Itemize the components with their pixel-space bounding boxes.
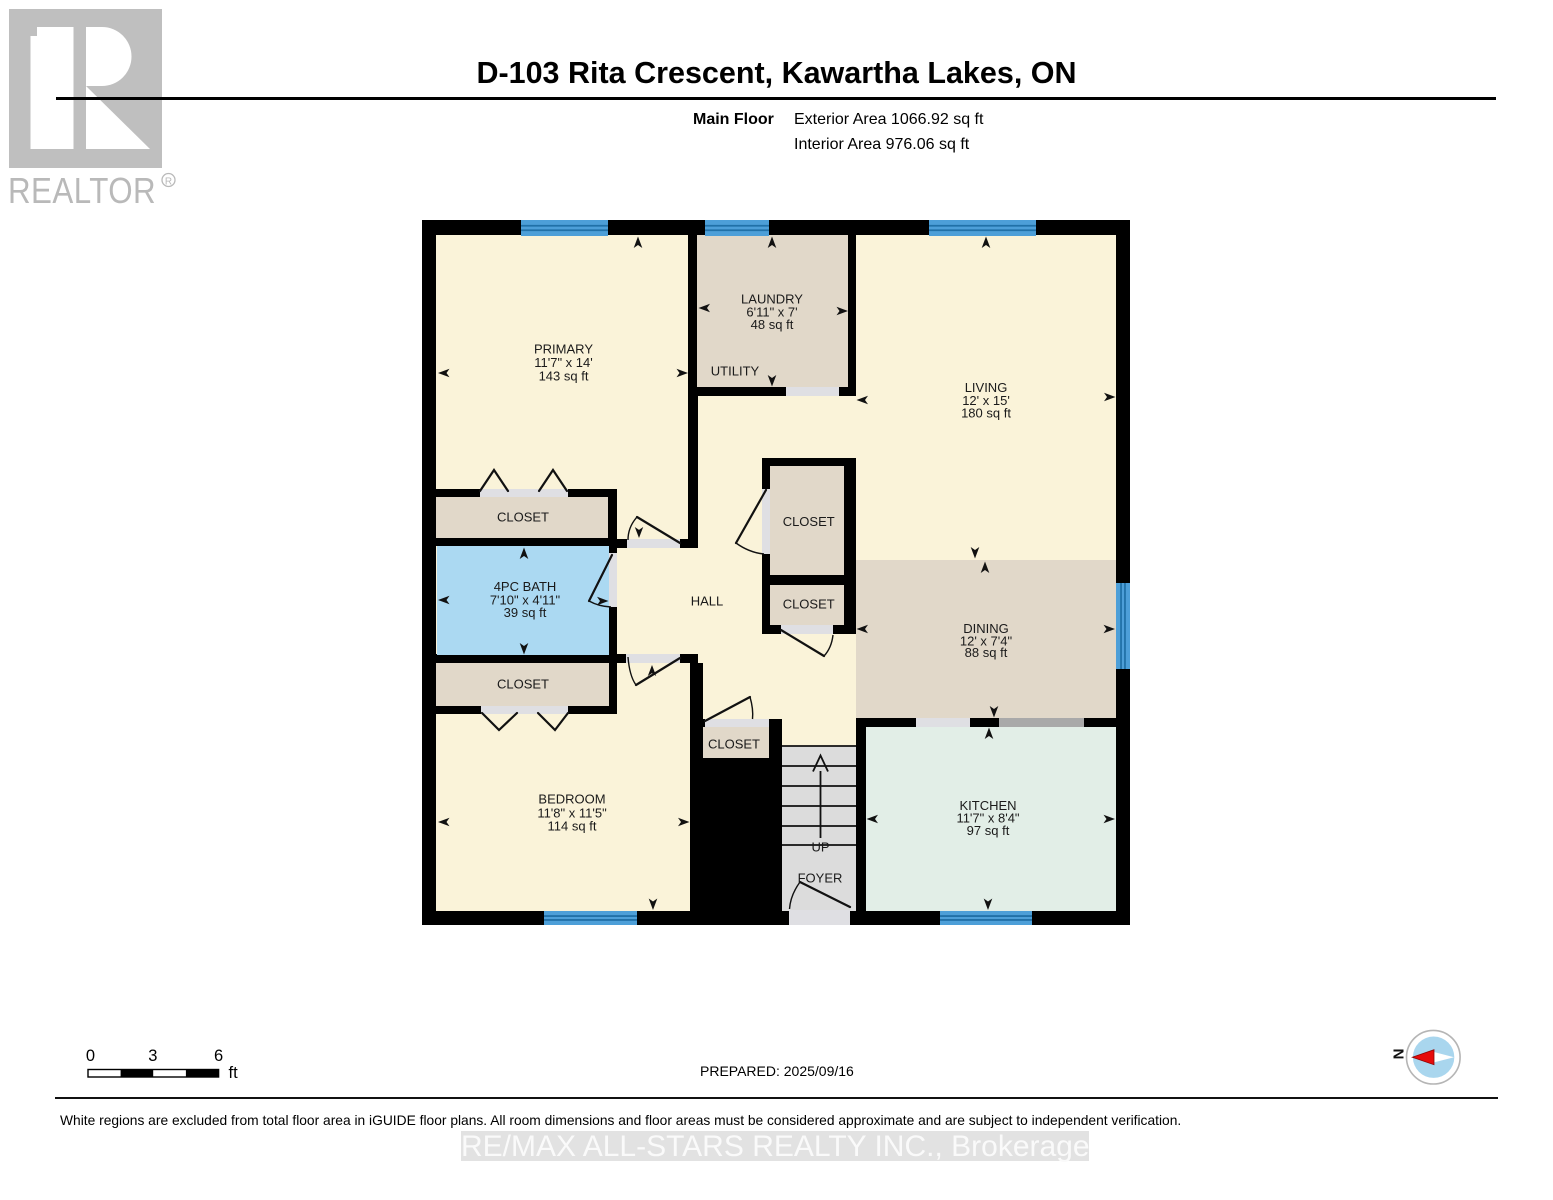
svg-text:ft: ft bbox=[229, 1064, 239, 1082]
svg-text:97 sq ft: 97 sq ft bbox=[967, 823, 1010, 838]
svg-text:CLOSET: CLOSET bbox=[497, 677, 549, 692]
svg-text:FOYER: FOYER bbox=[798, 871, 843, 886]
svg-text:39 sq ft: 39 sq ft bbox=[504, 605, 547, 620]
svg-text:CLOSET: CLOSET bbox=[497, 510, 549, 525]
svg-text:143 sq ft: 143 sq ft bbox=[539, 368, 589, 383]
svg-text:UP: UP bbox=[811, 840, 829, 855]
svg-text:0: 0 bbox=[86, 1047, 95, 1065]
svg-text:6: 6 bbox=[214, 1047, 223, 1065]
svg-text:3: 3 bbox=[148, 1047, 157, 1065]
svg-text:114 sq ft: 114 sq ft bbox=[548, 819, 597, 834]
svg-text:CLOSET: CLOSET bbox=[783, 514, 835, 529]
svg-text:N: N bbox=[1390, 1049, 1407, 1060]
svg-text:48 sq ft: 48 sq ft bbox=[751, 317, 794, 332]
svg-text:CLOSET: CLOSET bbox=[783, 597, 835, 612]
svg-text:CLOSET: CLOSET bbox=[708, 736, 760, 751]
svg-text:UTILITY: UTILITY bbox=[711, 364, 760, 379]
svg-text:180 sq ft: 180 sq ft bbox=[961, 406, 1011, 421]
svg-text:88 sq ft: 88 sq ft bbox=[965, 645, 1008, 660]
svg-text:BEDROOM: BEDROOM bbox=[538, 792, 605, 807]
svg-text:HALL: HALL bbox=[691, 594, 724, 609]
